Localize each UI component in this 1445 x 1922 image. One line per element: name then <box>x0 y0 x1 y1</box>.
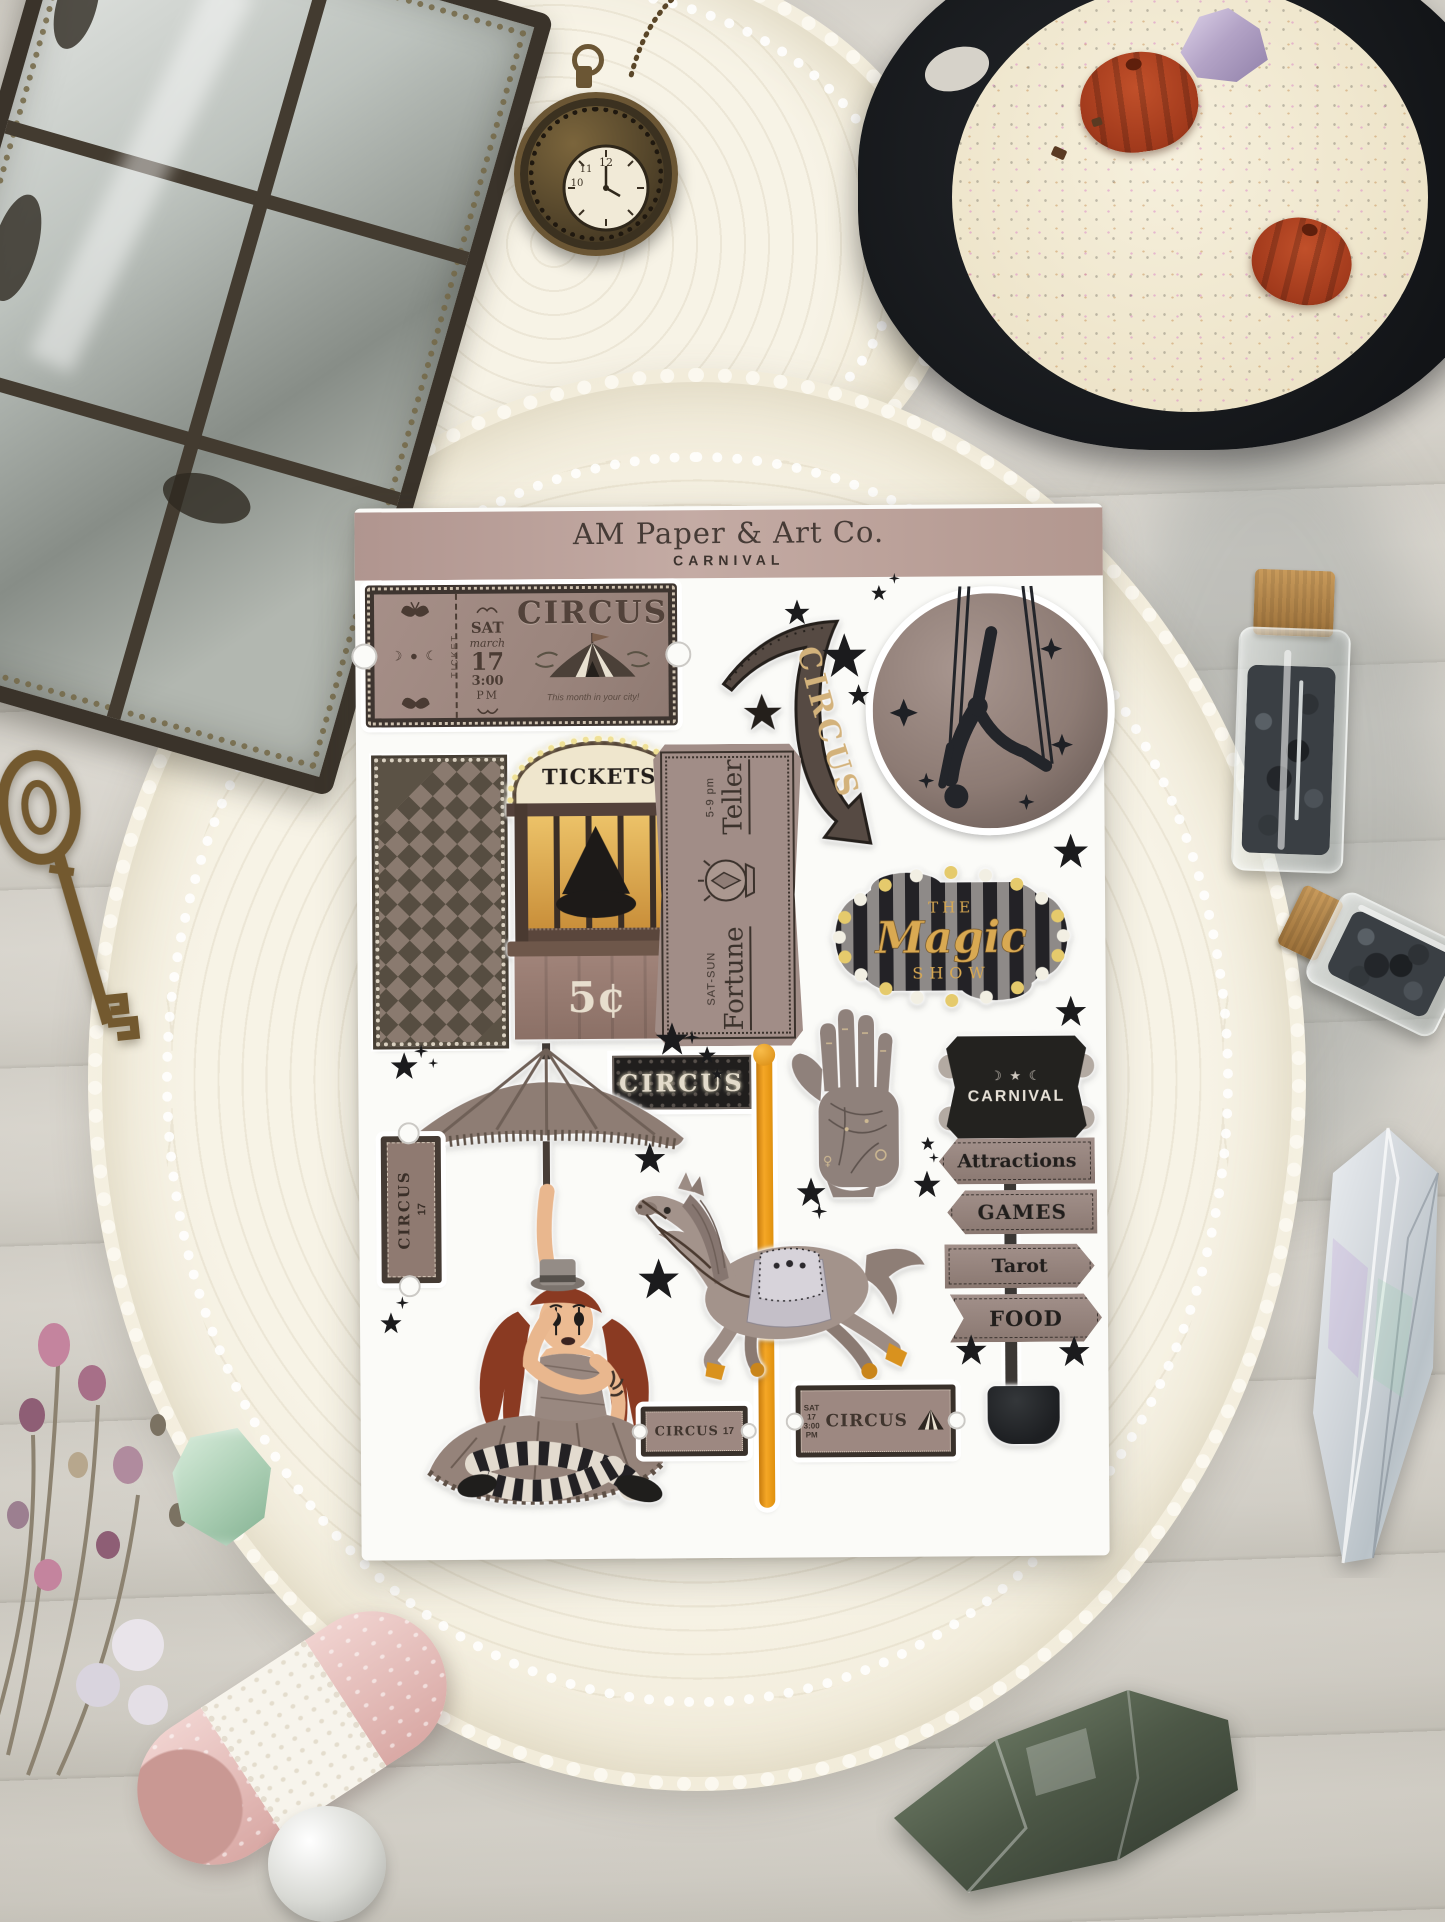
ticket-notch <box>351 643 377 669</box>
crystal-sphere <box>268 1806 386 1922</box>
ticket-notch <box>399 1275 421 1297</box>
ticket-meridiem: PM <box>458 688 518 701</box>
fortune-word2: Teller <box>718 759 751 834</box>
crystal-vial-upright <box>1227 568 1352 872</box>
moth-icon <box>398 692 432 714</box>
fortune-hours: 5-9 pm <box>704 760 717 835</box>
carnival-shield-sign: ☽ ★ ☾ CARNIVAL <box>946 1036 1087 1139</box>
brand-name: AM Paper & Art Co. <box>354 507 1102 552</box>
circus-tent-icon <box>518 630 668 687</box>
ticket-title: CIRCUS <box>517 594 668 631</box>
stub-label: TICKET <box>449 634 459 678</box>
photo-scene: 12 11 10 <box>0 0 1445 1922</box>
vertical-ticket-paper: CIRCUS 17 <box>387 1142 436 1277</box>
booth-silhouette <box>527 815 664 928</box>
food-arrow-sign: FOOD <box>950 1293 1102 1342</box>
sign-dashed-border <box>954 1297 1098 1338</box>
moon-phases: ☽ ● ☾ <box>391 648 440 664</box>
aerialist-circle-sticker <box>865 585 1116 836</box>
booth-base: 5¢ <box>514 955 679 1039</box>
horse-tail <box>865 1249 925 1316</box>
mini-ticket-paper: CIRCUS 17 <box>646 1411 743 1452</box>
scroll-ornament-icon <box>476 707 500 717</box>
crystal-ball-icon <box>696 848 760 912</box>
plaque-rotated-content: SAT-SUN Fortune 5-9 pm Teller <box>662 752 794 1038</box>
mini-ticket-datetime: SAT 17 3:00 PM <box>803 1403 819 1439</box>
roll-lace-band <box>201 1640 387 1833</box>
mini-ticket-title: CIRCUS <box>826 1411 908 1432</box>
booth-window <box>527 815 664 928</box>
ticket-stub: ☽ ● ☾ TICKET <box>374 594 458 719</box>
harlequin-strip-sticker <box>374 758 506 1047</box>
sign-dashed-border <box>943 1141 1091 1180</box>
diamond-pattern <box>374 758 506 1047</box>
carousel-horse-sticker <box>626 1147 933 1397</box>
ticket-date-column: SAT march 17 3:00 PM <box>457 593 518 717</box>
ticket-time: 3:00 <box>458 673 518 688</box>
vertical-ticket-date: 17 <box>416 1204 428 1216</box>
magic-show-sticker: THE Magic SHOW <box>827 860 1076 1014</box>
mini-ticket-sticker: CIRCUS 17 <box>641 1406 748 1457</box>
svg-text:11: 11 <box>580 164 593 175</box>
pocket-watch: 12 11 10 <box>514 92 678 256</box>
ticket-date: 17 <box>457 649 517 673</box>
tarot-arrow-sign: Tarot <box>944 1243 1094 1288</box>
vertical-ticket-title: CIRCUS <box>394 1170 413 1249</box>
ticket-notch <box>665 641 691 667</box>
watch-crown <box>576 66 592 88</box>
collection-name: CARNIVAL <box>355 549 1103 570</box>
mini-circus-ticket-sticker: SAT 17 3:00 PM CIRCUS <box>795 1384 955 1457</box>
attractions-arrow-sign: Attractions <box>939 1137 1095 1184</box>
saddle <box>759 1248 823 1301</box>
sheet-header-band: AM Paper & Art Co. CARNIVAL <box>354 507 1102 580</box>
green-phantom-crystal <box>876 1628 1256 1922</box>
signpost-base <box>987 1386 1059 1445</box>
ticket-tagline: This month in your city! <box>518 691 669 702</box>
ticket-day: SAT <box>457 618 517 636</box>
magic-line2: Magic <box>873 912 1027 964</box>
circus-ticket-sticker: ☽ ● ☾ TICKET SAT march 17 3:00 PM CIRCUS <box>365 583 678 727</box>
booth-column <box>514 803 528 941</box>
sticker-sheet: AM Paper & Art Co. CARNIVAL ☽ ● ☾ TICKET… <box>354 503 1109 1560</box>
sign-dashed-border <box>949 1248 1091 1285</box>
svg-text:10: 10 <box>571 178 584 189</box>
ticket-main: CIRCUS This month in your city! <box>517 592 669 717</box>
fortune-days: SAT-SUN <box>705 927 718 1031</box>
ticket-notch <box>741 1423 757 1439</box>
booth-price: 5¢ <box>567 973 626 1022</box>
games-arrow-sign: GAMES <box>947 1189 1097 1234</box>
watch-dial: 12 11 10 <box>562 144 650 232</box>
mini-ticket-paper: SAT 17 3:00 PM CIRCUS <box>801 1389 951 1452</box>
quartz-crystal-point <box>1238 1118 1445 1578</box>
shield-title: CARNIVAL <box>968 1088 1066 1107</box>
ticket-notch <box>948 1411 966 1429</box>
scroll-ornament-icon <box>475 605 499 615</box>
vertical-ticket-sticker: CIRCUS 17 <box>381 1136 442 1283</box>
mini-ticket-date: 17 <box>723 1425 734 1436</box>
mini-ticket-title: CIRCUS <box>655 1424 719 1439</box>
aerialist-silhouette <box>865 585 1102 822</box>
shield-face: ☽ ★ ☾ CARNIVAL <box>946 1036 1087 1139</box>
ticket-notch <box>786 1413 804 1431</box>
shield-moons: ☽ ★ ☾ <box>990 1068 1042 1084</box>
ticket-notch <box>632 1424 648 1440</box>
ticket-notch <box>398 1122 420 1144</box>
ticket-paper: ☽ ● ☾ TICKET SAT march 17 3:00 PM CIRCUS <box>374 592 669 718</box>
sign-dashed-border <box>951 1193 1093 1230</box>
fortune-word1: Fortune <box>719 926 752 1030</box>
moth-icon <box>398 598 432 620</box>
fortune-teller-sticker: SAT-SUN Fortune 5-9 pm Teller <box>653 744 803 1047</box>
magic-line3: SHOW <box>912 963 991 983</box>
tent-icon <box>914 1408 948 1434</box>
